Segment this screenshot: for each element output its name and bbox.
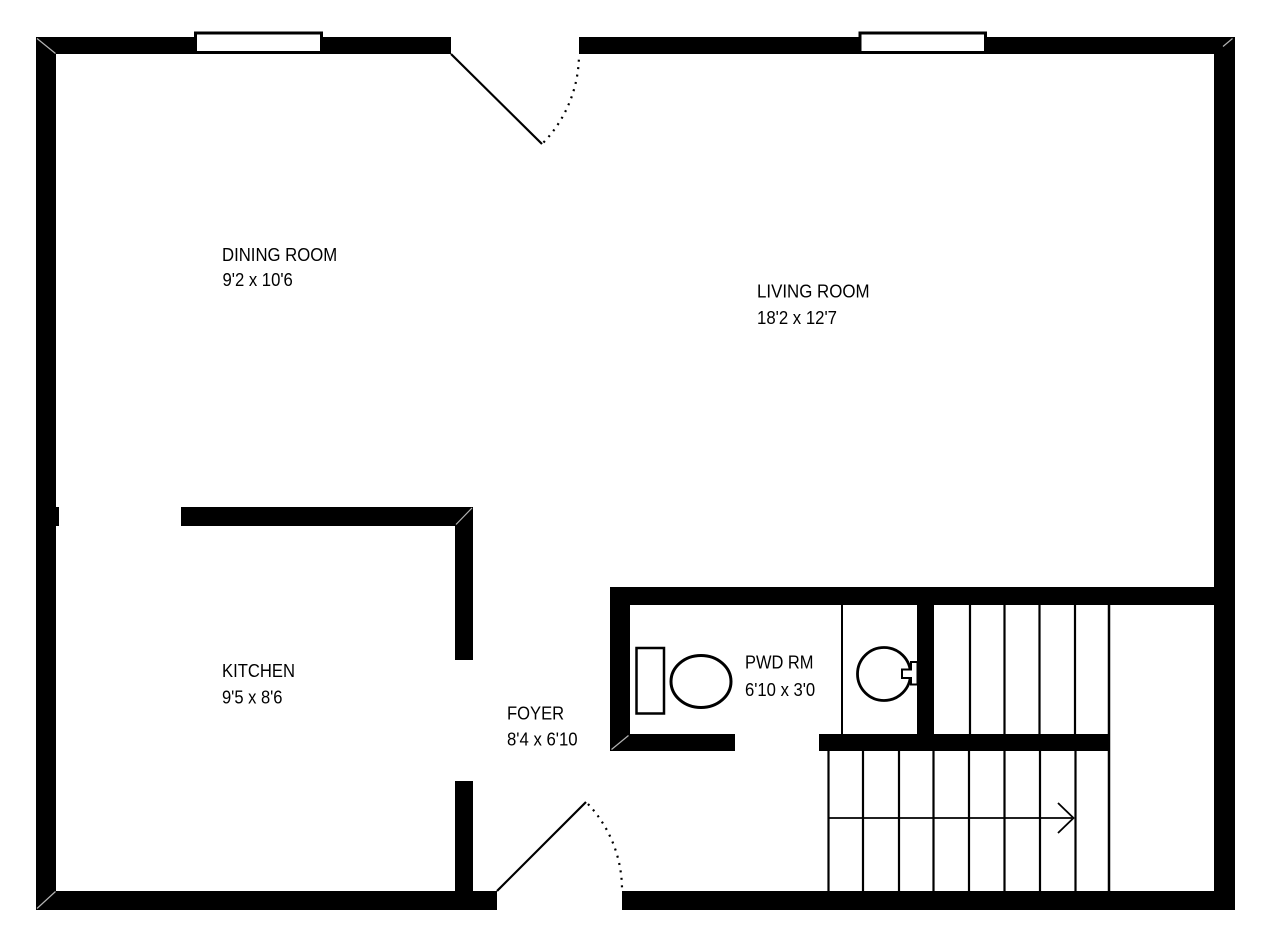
svg-text:9'5 x 8'6: 9'5 x 8'6 [222,688,283,708]
svg-text:LIVING ROOM: LIVING ROOM [757,282,870,302]
svg-text:FOYER: FOYER [507,704,564,724]
svg-text:KITCHEN: KITCHEN [222,661,295,681]
svg-text:6'10 x 3'0: 6'10 x 3'0 [745,680,815,700]
svg-text:DINING ROOM: DINING ROOM [222,245,337,265]
svg-text:18'2 x 12'7: 18'2 x 12'7 [757,308,837,328]
svg-text:PWD RM: PWD RM [745,653,814,673]
svg-text:9'2 x 10'6: 9'2 x 10'6 [223,270,293,290]
svg-text:8'4 x 6'10: 8'4 x 6'10 [507,730,578,750]
